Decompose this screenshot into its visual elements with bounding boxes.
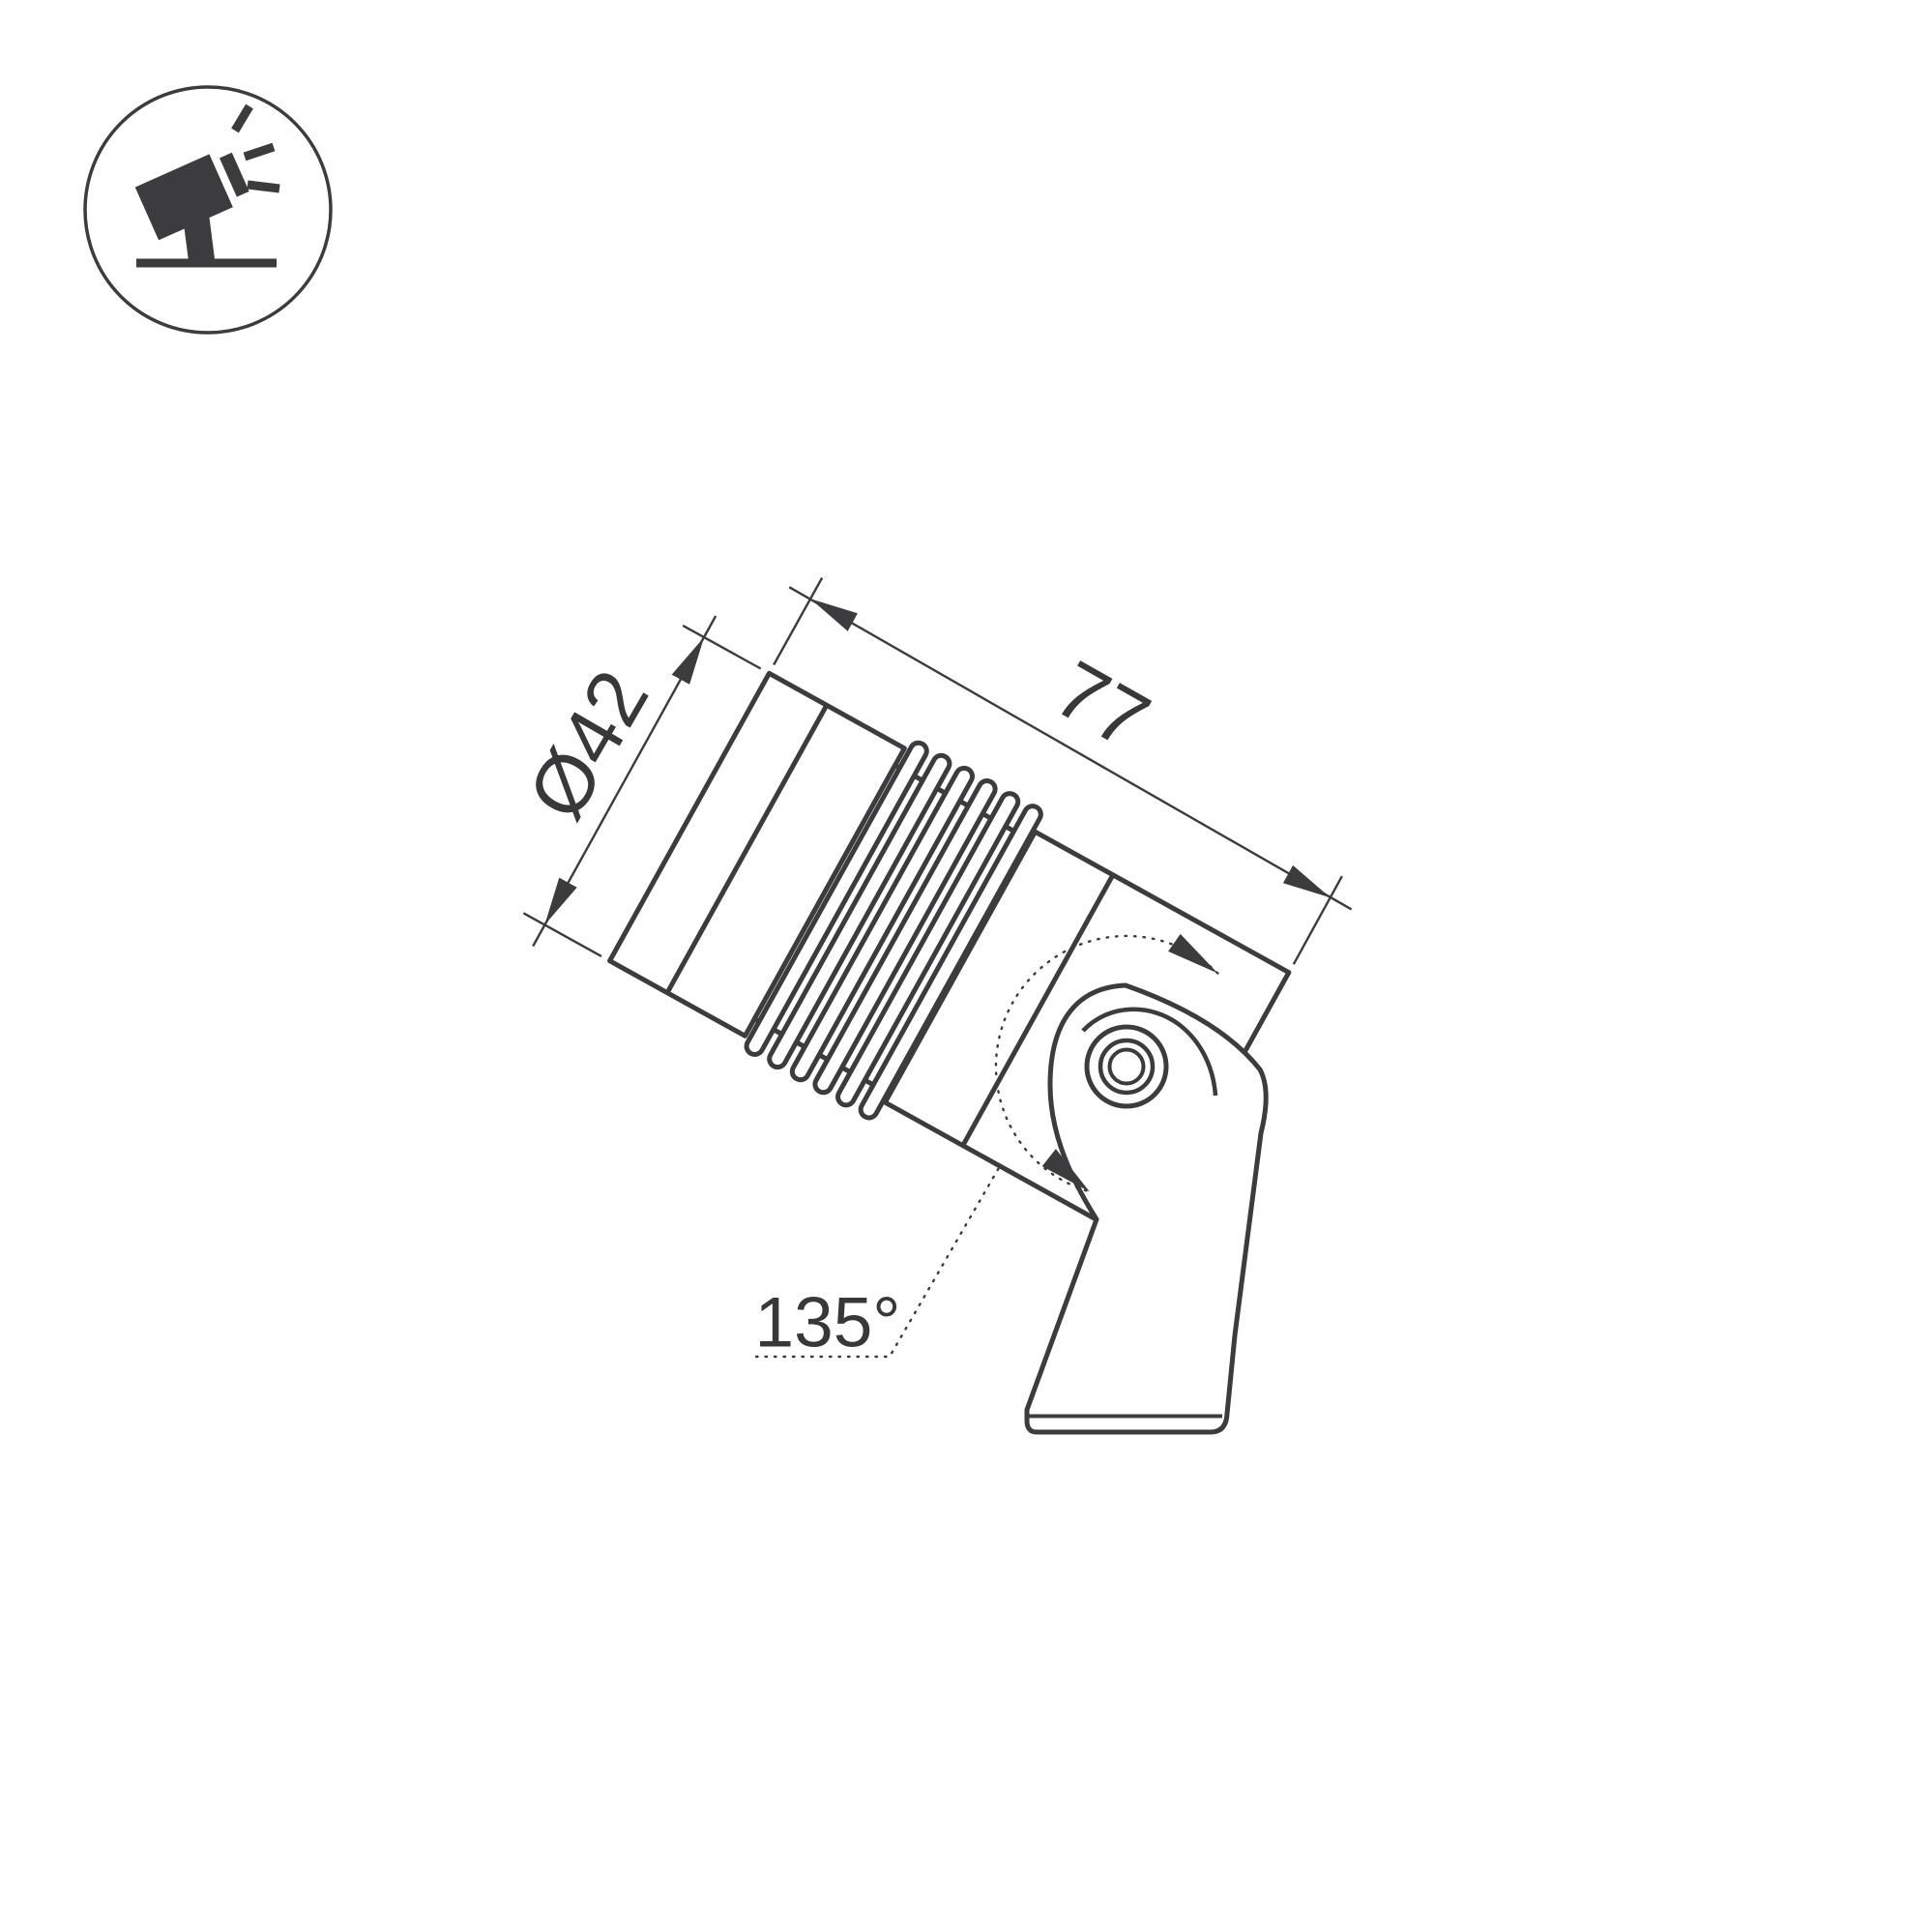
spotlight-dimension-drawing: Ø42 77 135° bbox=[0, 0, 1932, 1932]
length-label: 77 bbox=[1040, 643, 1164, 767]
adjustable-spotlight-icon bbox=[85, 87, 331, 333]
diameter-label: Ø42 bbox=[511, 656, 666, 834]
extension-line bbox=[523, 913, 601, 956]
arrowhead-icon bbox=[672, 637, 704, 685]
rotation-label: 135° bbox=[755, 1284, 901, 1362]
dimension-drawing-page: Ø42 77 135° bbox=[0, 0, 1932, 1932]
arrowhead-icon bbox=[544, 878, 576, 925]
arrowhead-icon bbox=[1283, 865, 1331, 897]
mounting-bracket bbox=[1027, 985, 1266, 1432]
icon-stem bbox=[183, 214, 215, 261]
arrowhead-icon bbox=[810, 599, 858, 630]
